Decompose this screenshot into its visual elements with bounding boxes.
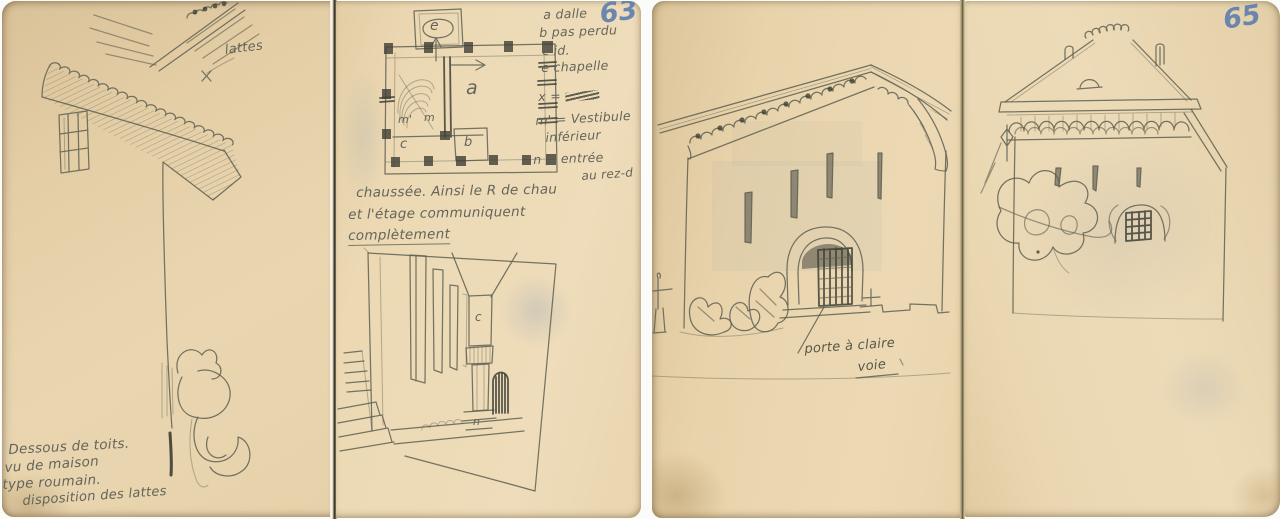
plan-label-m-prime: m' (398, 113, 412, 126)
plan-label-c: c (400, 137, 407, 152)
spread-right: porte à claire voie (652, 0, 1280, 519)
plan-label-b: b (464, 135, 473, 150)
corridor-label-c: c (475, 310, 482, 324)
caption-guides (652, 359, 950, 379)
page-plan-and-corridor: e a m' m c b a dalle b pas perdu c id. e… (336, 1, 641, 518)
sketch-plan-and-corridor (336, 1, 641, 518)
sketch-house-facade (965, 1, 1280, 517)
scribbled-out-word (565, 90, 600, 102)
plan-label-e: e (430, 18, 439, 34)
roof-eave-sketch (42, 63, 241, 475)
legend-note: a dalle (543, 5, 587, 22)
page-roof-study: lattes Dessous de toits. vu de maison ty… (2, 1, 332, 517)
corridor-perspective-sketch (338, 248, 556, 491)
legend-note: inférieur (545, 127, 601, 145)
spire-sketch (981, 125, 1013, 193)
paragraph-line-underlined: complètement (348, 226, 450, 246)
plan-label-m: m (424, 111, 435, 124)
page-number-65: 65 (1221, 1, 1263, 36)
sketchbook-scan: lattes Dessous de toits. vu de maison ty… (0, 0, 1280, 519)
door-sketch (1109, 205, 1170, 243)
cross-and-bushes-sketch (653, 272, 788, 336)
corbel-row-sketch (1007, 112, 1193, 140)
page-house-facade: 65 (965, 1, 1280, 517)
legend-note: e chapelle (541, 58, 609, 75)
spread-left: lattes Dessous de toits. vu de maison ty… (0, 0, 641, 519)
facade-sketch (1013, 109, 1227, 321)
page-number-63: 63 (598, 1, 639, 30)
corridor-label-n: n (473, 415, 480, 428)
legend-note-struck: x = (538, 87, 599, 104)
plan-label-a: a (466, 77, 478, 99)
figure-scribble-sketch (162, 350, 250, 487)
legend-note: n = entrée (533, 150, 604, 167)
roof-sketch (999, 24, 1201, 112)
portal-caption-line: voie (857, 357, 887, 375)
paragraph-line: et l'étage communiquent (348, 204, 526, 223)
page-church-facade: porte à claire voie (652, 1, 960, 518)
sketch-church-facade (652, 1, 960, 518)
legend-note: c id. (542, 43, 570, 58)
